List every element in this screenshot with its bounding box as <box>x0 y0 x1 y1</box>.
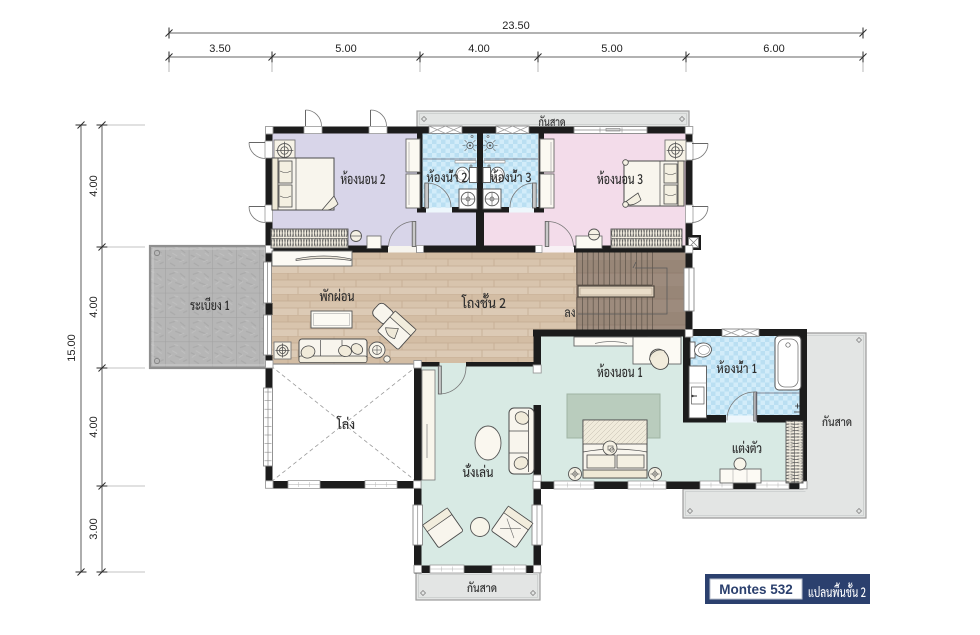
svg-text:4.00: 4.00 <box>88 416 100 437</box>
svg-text:5.00: 5.00 <box>601 43 622 55</box>
svg-text:4.00: 4.00 <box>468 43 489 55</box>
svg-text:Montes 532: Montes 532 <box>719 582 793 597</box>
svg-text:3.50: 3.50 <box>209 43 230 55</box>
svg-text:6.00: 6.00 <box>763 43 784 55</box>
svg-text:4.00: 4.00 <box>88 175 100 196</box>
svg-text:5.00: 5.00 <box>335 43 356 55</box>
svg-text:15.00: 15.00 <box>66 334 78 362</box>
svg-text:23.50: 23.50 <box>502 20 530 32</box>
svg-text:3.00: 3.00 <box>88 518 100 539</box>
svg-text:4.00: 4.00 <box>88 296 100 317</box>
